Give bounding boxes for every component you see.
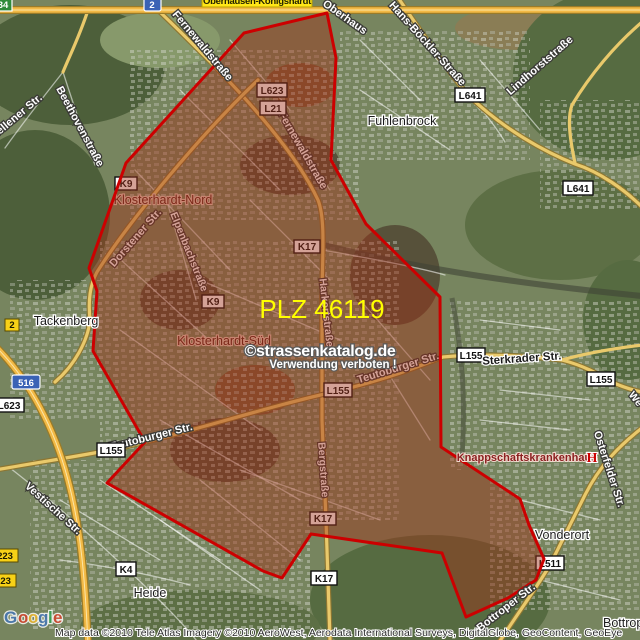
route-shield-l623-west: L623 (0, 398, 24, 412)
svg-text:o: o (18, 608, 28, 627)
hospital-icon: H (587, 451, 598, 466)
svg-text:L155: L155 (460, 351, 483, 362)
svg-text:Oberhausen-Königshardt: Oberhausen-Königshardt (203, 0, 312, 7)
route-shield-l155-3: L155 (97, 443, 125, 457)
route-shield-l641-2: L641 (563, 181, 593, 195)
svg-text:L641: L641 (567, 184, 590, 195)
route-shield-b2: 2 (5, 319, 19, 331)
svg-text:o: o (28, 608, 38, 627)
map-svg: Klosterhardt-Nord Klosterhardt-Süd Ferne… (0, 0, 640, 640)
svg-text:K4: K4 (120, 565, 133, 576)
place-label-vonderort: Vonderort (535, 528, 590, 542)
place-label-heide: Heide (134, 586, 167, 600)
plz-label: PLZ 46119 (259, 294, 384, 324)
place-label-knappschaftskrankenhaus: Knappschaftskrankenhaus (457, 452, 598, 464)
route-shield-l155-2: L155 (587, 372, 615, 386)
place-label-fuhlenbrock: Fuhlenbrock (368, 114, 438, 128)
svg-text:516: 516 (18, 378, 34, 389)
route-shield-a516: 516 (12, 375, 40, 389)
svg-text:2: 2 (9, 320, 14, 331)
svg-text:34: 34 (0, 0, 9, 11)
highlighted-place-label: Oberhausen-Königshardt (202, 0, 312, 7)
route-shield-k4: K4 (116, 562, 136, 576)
route-shield-e34: 34 (0, 0, 12, 11)
watermark-line2: Verwendung verboten ! (269, 359, 396, 371)
route-shield-b223-1: 223 (0, 549, 18, 562)
route-shield-k17-3: K17 (311, 571, 337, 585)
svg-text:L155: L155 (100, 446, 123, 457)
svg-text:L641: L641 (459, 91, 482, 102)
svg-text:G: G (4, 608, 17, 627)
route-shield-l641-1: L641 (455, 88, 485, 102)
map-canvas[interactable]: Klosterhardt-Nord Klosterhardt-Süd Ferne… (0, 0, 640, 640)
route-shield-a2: 2 (144, 0, 161, 11)
svg-text:K17: K17 (315, 574, 334, 585)
place-label-tackenberg: Tackenberg (34, 314, 99, 328)
svg-text:223: 223 (0, 551, 13, 562)
copyright-text: Map data ©2010 Tele Atlas Imagery ©2010 … (55, 627, 622, 639)
svg-text:L623: L623 (0, 401, 21, 412)
watermark-line1: ©strassenkatalog.de (244, 343, 395, 360)
google-logo: G o o g l e (4, 608, 62, 627)
svg-text:e: e (53, 608, 62, 627)
svg-text:L155: L155 (590, 375, 613, 386)
svg-text:g: g (38, 608, 48, 627)
route-shield-b223-2: 223 (0, 574, 16, 587)
svg-text:223: 223 (0, 576, 11, 587)
svg-text:2: 2 (149, 0, 154, 11)
